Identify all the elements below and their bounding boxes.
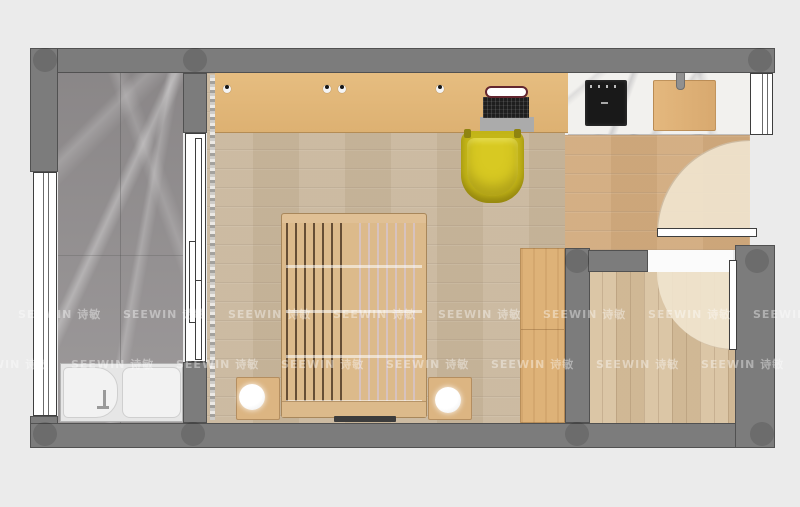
entry-side-window [750, 73, 773, 135]
cable-grommet [323, 85, 331, 93]
cooktop-mark [601, 102, 608, 104]
wall-stud [33, 48, 57, 72]
chair-leg [514, 129, 521, 138]
wall-room-top [588, 250, 648, 272]
sliding-door-panel [195, 280, 202, 360]
bath-unit [60, 363, 183, 422]
cable-grommet [436, 85, 444, 93]
wall-right-lower [735, 245, 775, 448]
wall-stud [745, 249, 769, 273]
lamp-left [239, 384, 265, 410]
chair-seat [467, 138, 518, 196]
wall-divider-upper [183, 73, 207, 133]
wall-stud [183, 48, 207, 72]
faucet-icon [97, 406, 109, 409]
chair-leg [464, 129, 471, 138]
laptop-keyboard [483, 97, 529, 118]
cable-grommet [338, 85, 346, 93]
wall-stud [33, 422, 57, 446]
wall-bottom [30, 423, 775, 448]
headboard-accent [334, 416, 396, 422]
bed [281, 213, 427, 418]
floor-plan: SEEWIN 诗敏SEEWIN 诗敏SEEWIN 诗敏SEEWIN 诗敏SEEW… [0, 0, 800, 507]
wall-stud [750, 422, 774, 446]
wall-mid-vertical [565, 248, 590, 423]
cooktop [585, 80, 627, 126]
wardrobe-cabinet [520, 248, 565, 423]
marble-tile-seam [58, 255, 183, 256]
wall-stud [748, 48, 772, 72]
wall-divider-lower [183, 362, 207, 423]
wall-stud [565, 249, 589, 273]
shower-tray [63, 367, 118, 418]
window-mullion [43, 173, 49, 415]
bed-foot-rail [282, 214, 426, 223]
wall-stud [565, 422, 589, 446]
laptop-screen-bar [485, 86, 528, 98]
bed-headboard [282, 401, 426, 417]
room-door-opening [648, 250, 733, 272]
room-door-leaf [729, 260, 737, 350]
laptop-base [480, 117, 534, 132]
balcony-window [33, 172, 57, 416]
desk-chair [461, 131, 524, 203]
entry-door-leaf [657, 228, 757, 237]
sliding-door-track [185, 133, 206, 362]
wall-stud [181, 422, 205, 446]
bed-slats [286, 223, 422, 402]
lamp-right [435, 387, 461, 413]
counter-handle [676, 70, 685, 90]
cabinet-divider [521, 329, 564, 330]
window-mullion [762, 74, 768, 134]
cable-grommet [223, 85, 231, 93]
bathtub-tray [122, 367, 181, 418]
bed-slat-breaks [286, 223, 422, 402]
wall-top [30, 48, 775, 73]
cooktop-knobs [590, 85, 622, 88]
faucet-icon [103, 390, 106, 406]
kitchen-counter [568, 73, 750, 135]
